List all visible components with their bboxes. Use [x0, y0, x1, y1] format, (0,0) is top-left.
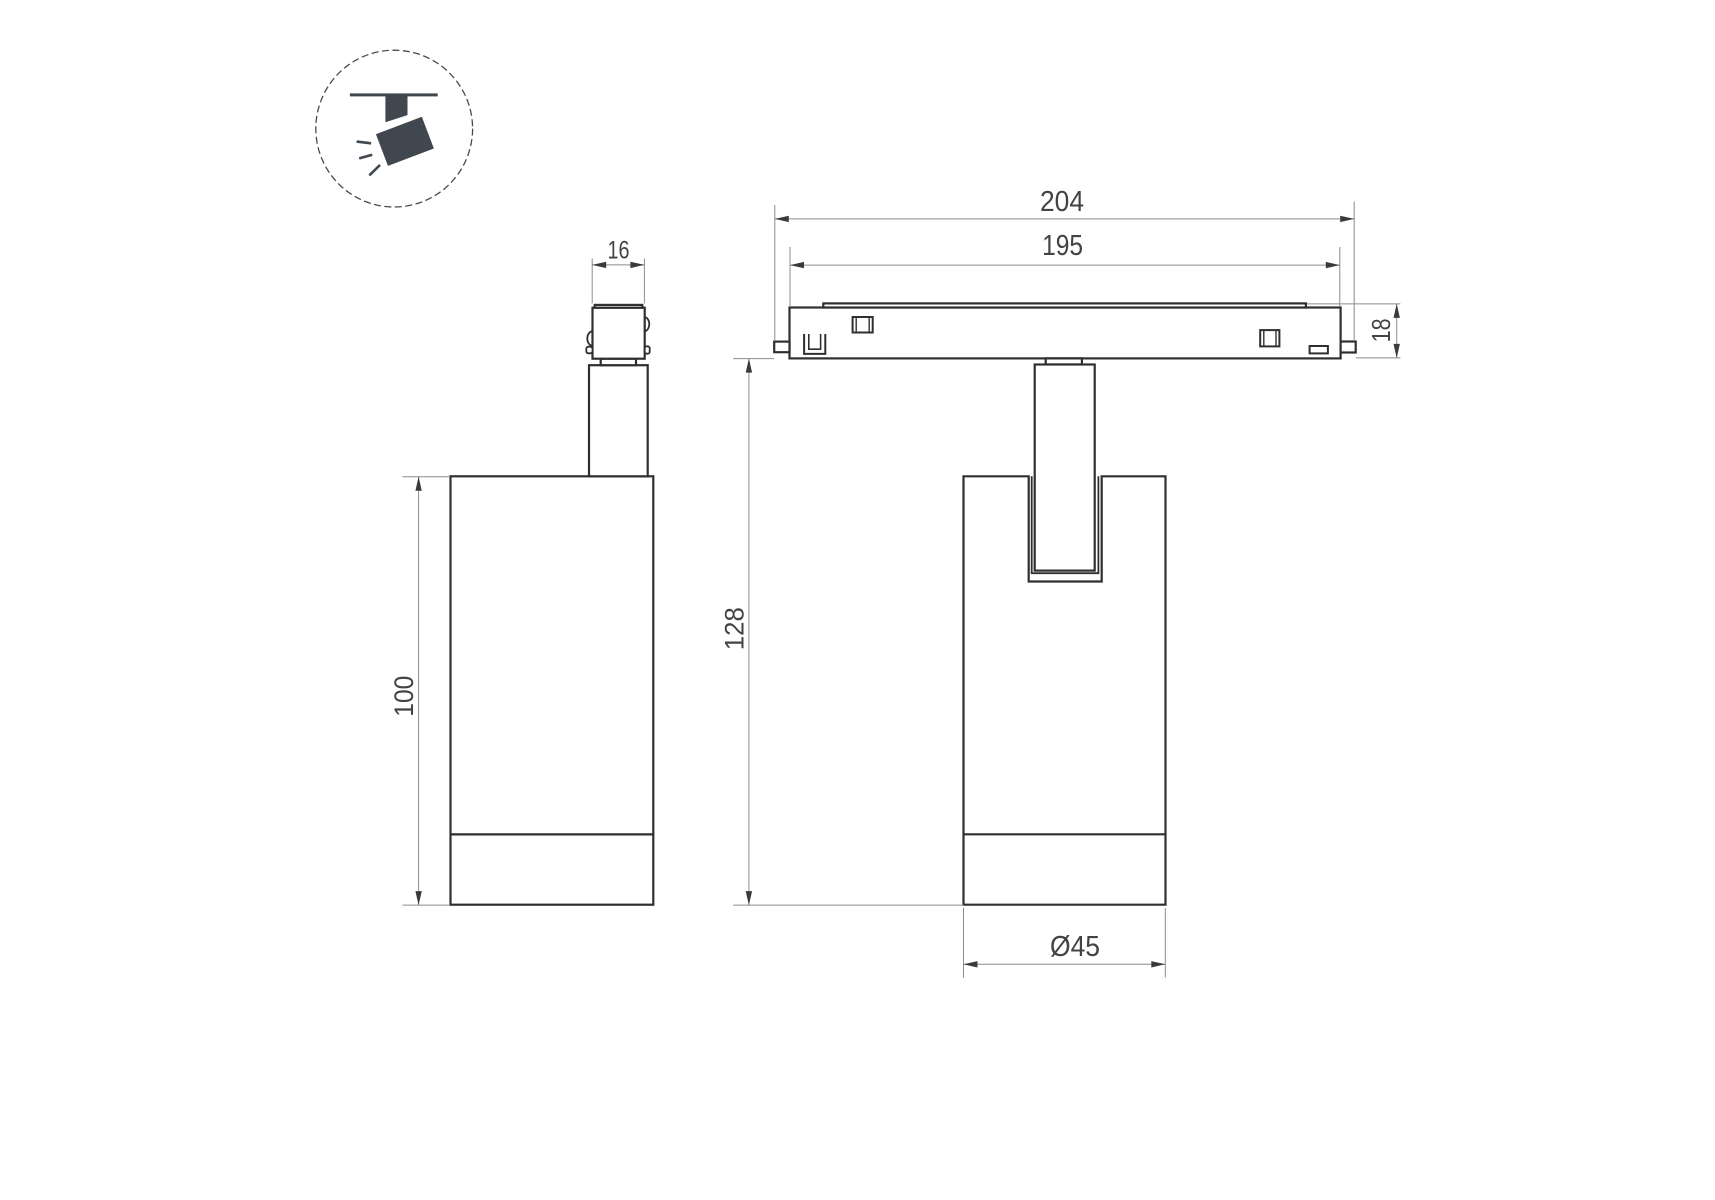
svg-text:204: 204: [1040, 186, 1084, 218]
svg-text:128: 128: [720, 607, 750, 650]
svg-text:100: 100: [389, 676, 419, 717]
svg-text:16: 16: [608, 237, 630, 265]
svg-text:Ø45: Ø45: [1050, 931, 1100, 963]
svg-text:18: 18: [1366, 318, 1396, 342]
svg-text:195: 195: [1042, 230, 1083, 262]
